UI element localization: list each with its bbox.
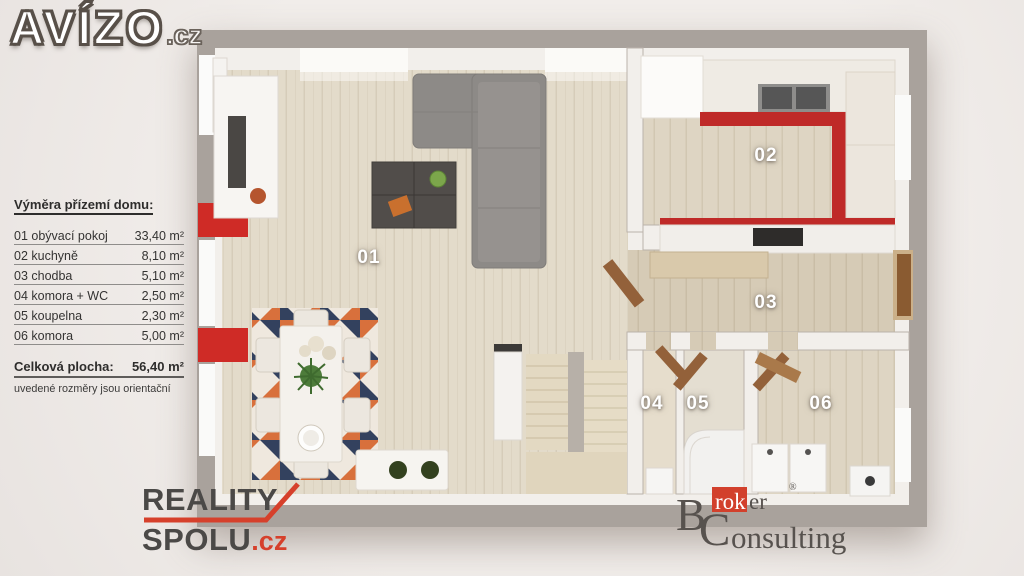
- legend-row: 06 komora 5,00 m²: [14, 328, 184, 345]
- plant: [421, 461, 439, 479]
- stair-landing: [526, 452, 627, 494]
- room-label-04: 04: [640, 393, 663, 415]
- legend-row: 02 kuchyně 8,10 m²: [14, 248, 184, 265]
- legend-total-label: Celková plocha:: [14, 359, 114, 374]
- legend-room-name: 01 obývací pokoj: [14, 229, 108, 243]
- decor-item: [250, 188, 266, 204]
- red-sill-2: [198, 328, 248, 362]
- legend-room-name: 06 komora: [14, 329, 73, 343]
- left-window-2: [199, 364, 215, 456]
- room-label-03: 03: [754, 292, 777, 314]
- avizo-logo-text: AVÍZO: [10, 1, 165, 54]
- legend-row: 01 obývací pokoj 33,40 m²: [14, 228, 184, 245]
- sink-basin: [762, 87, 792, 109]
- stair-cabinet: [494, 352, 522, 440]
- dryer-knob: [805, 449, 811, 455]
- reality-spolu-roof-line: [142, 482, 322, 528]
- plate-green: [430, 171, 446, 187]
- right-window-room06: [895, 408, 911, 482]
- legend-row: 04 komora + WC 2,50 m²: [14, 288, 184, 305]
- broker-consulting-logo: B rok er ® C onsulting: [676, 486, 896, 564]
- legend-total-area: 56,40 m²: [132, 359, 184, 374]
- room-label-05: 05: [686, 393, 709, 415]
- sink-basin: [796, 87, 826, 109]
- reality-spolu-line2: SPOLU.cz: [142, 524, 322, 555]
- shower: [684, 430, 744, 494]
- broker-initial-c: C: [699, 507, 730, 554]
- peninsula-red-edge: [660, 218, 895, 225]
- plant: [389, 461, 407, 479]
- reality-spolu-tld: .cz: [251, 526, 287, 556]
- stair-flight-right: [584, 360, 627, 452]
- tv: [228, 116, 246, 188]
- legend-room-area: 8,10 m²: [142, 249, 184, 263]
- legend-room-area: 5,10 m²: [142, 269, 184, 283]
- kitchen-tall-unit: [641, 56, 703, 118]
- legend-room-area: 5,00 m²: [142, 329, 184, 343]
- legend-room-name: 04 komora + WC: [14, 289, 108, 303]
- legend-room-name: 02 kuchyně: [14, 249, 78, 263]
- left-window-1: [199, 240, 215, 326]
- legend-room-name: 05 koupelna: [14, 309, 82, 323]
- reality-spolu-logo: REALITY SPOLU.cz: [142, 484, 322, 570]
- plate: [299, 345, 311, 357]
- legend-note: uvedené rozměry jsou orientační: [14, 383, 184, 395]
- room-label-02: 02: [754, 145, 777, 167]
- legend-room-area: 33,40 m²: [135, 229, 184, 243]
- boiler-knob: [865, 476, 875, 486]
- plate: [322, 346, 336, 360]
- avizo-logo-tld: .cz: [166, 20, 202, 50]
- room-label-01: 01: [357, 247, 380, 269]
- legend-row: 05 koupelna 2,30 m²: [14, 308, 184, 325]
- right-window-kitchen: [895, 95, 911, 180]
- broker-er: er: [749, 490, 767, 513]
- avizo-logo: AVÍZO.cz: [10, 0, 202, 55]
- entrance-door: [897, 254, 911, 316]
- stair-divider-wall: [568, 352, 584, 452]
- broker-registered-mark: ®: [789, 483, 797, 493]
- area-legend: Výměra přízemí domu: 01 obývací pokoj 33…: [14, 196, 184, 395]
- wc-fixture: [646, 468, 673, 494]
- cabinet-top: [494, 344, 522, 352]
- washer-knob: [767, 449, 773, 455]
- legend-room-area: 2,50 m²: [142, 289, 184, 303]
- cooktop: [753, 228, 803, 246]
- legend-row: 03 chodba 5,10 m²: [14, 268, 184, 285]
- sofa-cushions: [478, 82, 540, 262]
- legend-total-row: Celková plocha: 56,40 m²: [14, 359, 184, 378]
- page: 01 02 03 04 05 06 AVÍZO.cz Výměra přízem…: [0, 0, 1024, 576]
- bowl-inner: [303, 430, 319, 446]
- wall-stairs-room04: [627, 350, 643, 494]
- legend-room-area: 2,30 m²: [142, 309, 184, 323]
- hall-bench: [650, 252, 768, 278]
- broker-consulting-text: onsulting: [731, 522, 846, 553]
- legend-title: Výměra přízemí domu:: [14, 197, 153, 215]
- room-label-06: 06: [809, 393, 832, 415]
- legend-room-name: 03 chodba: [14, 269, 72, 283]
